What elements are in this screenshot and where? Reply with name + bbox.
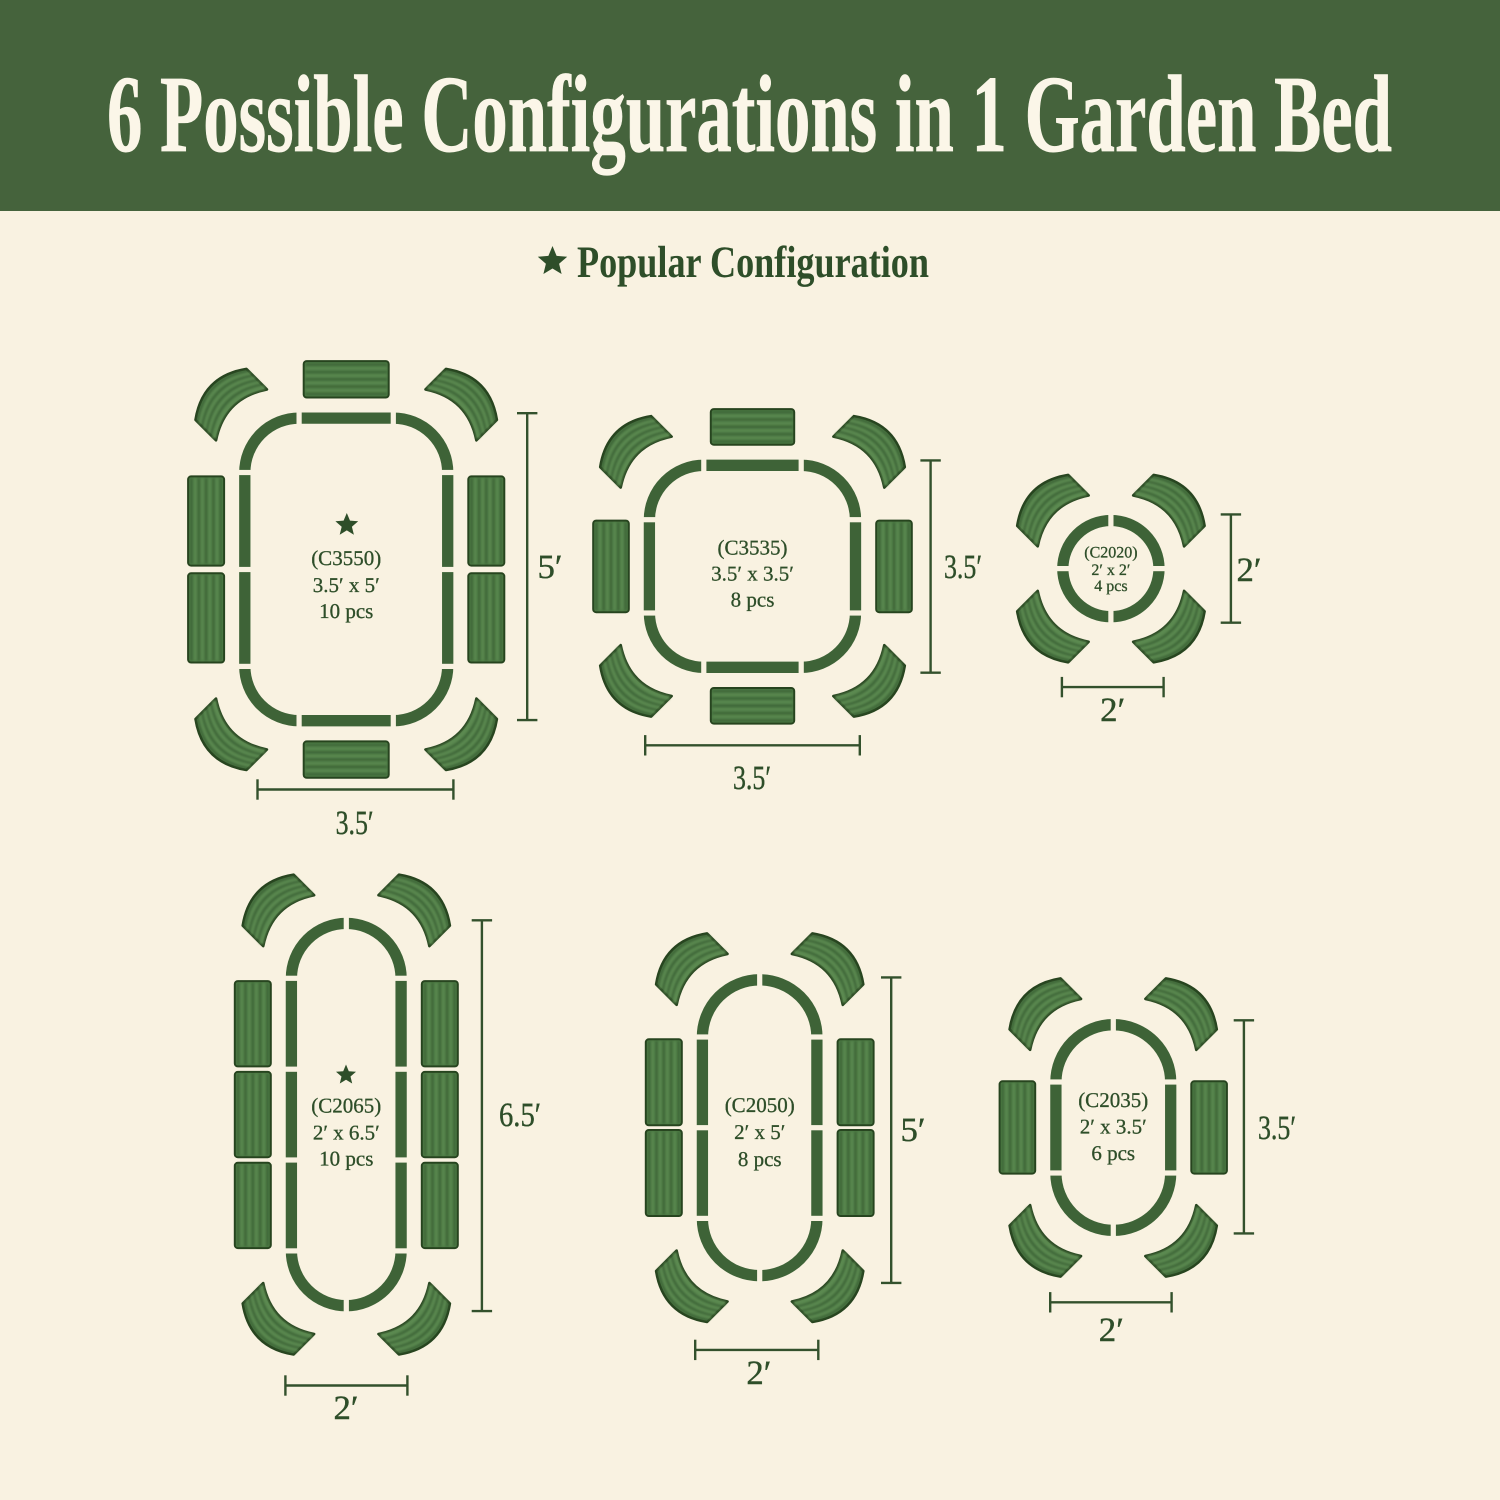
svg-text:5′: 5′ xyxy=(538,549,563,586)
svg-text:2′ x 2′: 2′ x 2′ xyxy=(1091,562,1130,579)
svg-text:2′: 2′ xyxy=(334,1390,359,1427)
svg-text:(C2020): (C2020) xyxy=(1084,544,1137,561)
svg-text:2′: 2′ xyxy=(1237,552,1262,589)
svg-text:Popular Configuration: Popular Configuration xyxy=(577,237,929,287)
svg-text:6 Possible Configurations in 1: 6 Possible Configurations in 1 Garden Be… xyxy=(107,53,1392,176)
svg-text:6.5′: 6.5′ xyxy=(499,1097,541,1134)
svg-text:5′: 5′ xyxy=(901,1112,926,1149)
svg-text:(C2050): (C2050) xyxy=(725,1093,795,1117)
svg-text:3.5′ x 3.5′: 3.5′ x 3.5′ xyxy=(711,562,794,586)
svg-text:3.5′: 3.5′ xyxy=(1258,1110,1296,1147)
svg-text:8 pcs: 8 pcs xyxy=(738,1147,782,1171)
svg-text:3.5′: 3.5′ xyxy=(733,760,771,797)
svg-text:2′ x 3.5′: 2′ x 3.5′ xyxy=(1080,1115,1147,1139)
svg-text:3.5′: 3.5′ xyxy=(336,805,374,842)
svg-text:2′: 2′ xyxy=(1100,692,1125,729)
svg-text:3.5′ x 5′: 3.5′ x 5′ xyxy=(313,573,380,597)
svg-text:4 pcs: 4 pcs xyxy=(1094,578,1127,595)
svg-text:3.5′: 3.5′ xyxy=(944,549,982,586)
svg-text:10 pcs: 10 pcs xyxy=(319,1146,373,1170)
svg-text:(C3535): (C3535) xyxy=(718,536,788,560)
svg-text:2′ x 5′: 2′ x 5′ xyxy=(734,1120,785,1144)
svg-text:2′: 2′ xyxy=(746,1355,771,1392)
svg-text:2′: 2′ xyxy=(1099,1312,1124,1349)
svg-text:(C3550): (C3550) xyxy=(311,546,381,570)
svg-text:2′ x 6.5′: 2′ x 6.5′ xyxy=(313,1121,380,1145)
svg-text:10 pcs: 10 pcs xyxy=(319,599,373,623)
svg-text:6 pcs: 6 pcs xyxy=(1091,1141,1135,1165)
svg-text:(C2035): (C2035) xyxy=(1078,1088,1148,1112)
svg-text:(C2065): (C2065) xyxy=(311,1093,381,1117)
svg-text:8 pcs: 8 pcs xyxy=(731,588,775,612)
